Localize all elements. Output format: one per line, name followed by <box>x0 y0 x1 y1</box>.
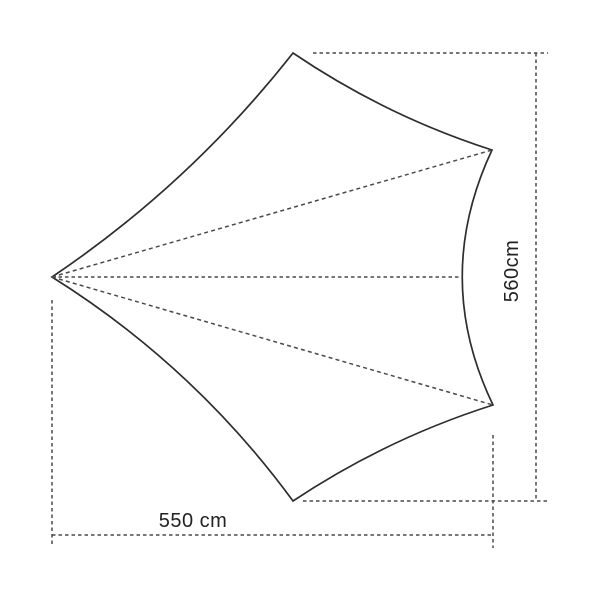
width-dimension-label: 550 cm <box>159 510 228 532</box>
diagram-canvas: 560cm 550 cm <box>0 0 600 600</box>
fold-line-upper <box>52 150 492 277</box>
fold-line-lower <box>52 277 493 405</box>
dimension-diagram: 560cm 550 cm <box>0 0 600 600</box>
height-dimension-label: 560cm <box>501 240 523 303</box>
fold-lines <box>52 150 493 405</box>
width-dimension: 550 cm <box>52 300 493 548</box>
